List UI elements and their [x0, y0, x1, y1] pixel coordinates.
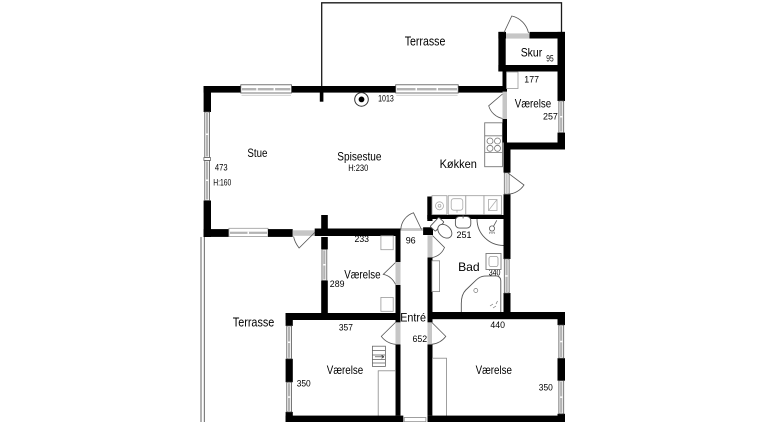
- svg-text:289: 289: [330, 279, 345, 289]
- svg-text:473: 473: [215, 163, 228, 173]
- svg-text:251: 251: [457, 230, 472, 240]
- svg-text:Entré: Entré: [400, 310, 426, 324]
- svg-text:350: 350: [539, 383, 553, 393]
- svg-text:Køkken: Køkken: [440, 157, 477, 171]
- svg-text:440: 440: [490, 320, 505, 330]
- svg-text:Terrasse: Terrasse: [233, 315, 274, 330]
- svg-text:Stue: Stue: [247, 146, 267, 160]
- svg-text:177: 177: [524, 74, 539, 84]
- svg-text:Værelse: Værelse: [344, 267, 381, 281]
- svg-text:Værelse: Værelse: [515, 97, 552, 111]
- svg-text:Værelse: Værelse: [327, 363, 364, 377]
- svg-text:Skur: Skur: [521, 45, 543, 59]
- svg-text:233: 233: [355, 234, 370, 244]
- svg-text:Terrasse: Terrasse: [405, 33, 446, 48]
- svg-text:Spisestue: Spisestue: [337, 150, 382, 164]
- svg-text:1013: 1013: [378, 93, 394, 103]
- svg-text:96: 96: [406, 235, 416, 245]
- svg-text:H:160: H:160: [213, 178, 231, 188]
- svg-text:652: 652: [413, 334, 428, 344]
- svg-text:Værelse: Værelse: [476, 363, 513, 377]
- svg-text:H:230: H:230: [348, 163, 368, 173]
- svg-text:Bad: Bad: [458, 260, 480, 274]
- svg-text:357: 357: [339, 323, 353, 333]
- svg-text:95: 95: [546, 53, 553, 63]
- svg-text:257: 257: [543, 112, 558, 122]
- svg-text:350: 350: [297, 379, 311, 389]
